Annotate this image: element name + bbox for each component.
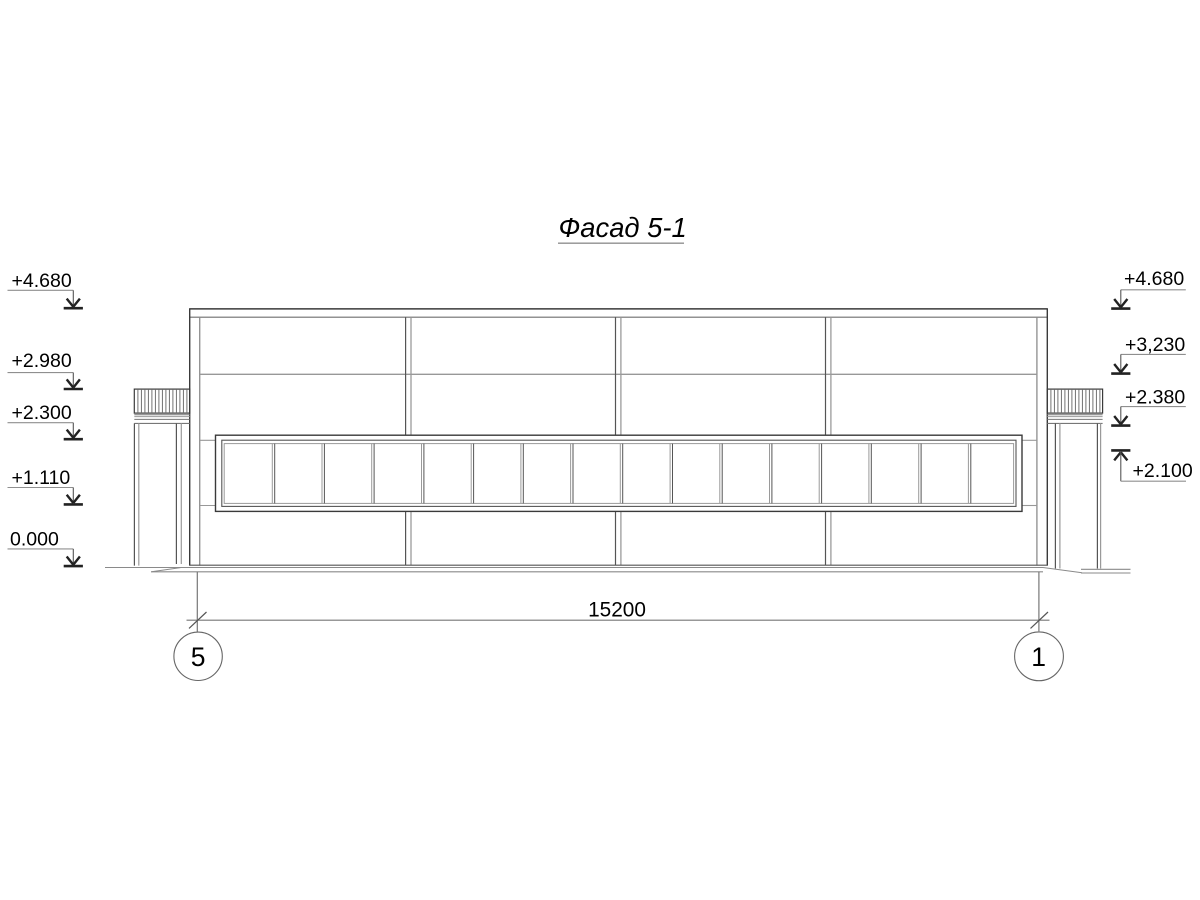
svg-text:+4.680: +4.680 [12,270,72,292]
svg-text:+1.110: +1.110 [12,467,71,489]
svg-text:+2.300: +2.300 [12,402,72,424]
svg-text:Фасад 5-1: Фасад 5-1 [559,212,687,243]
svg-text:1: 1 [1031,642,1046,672]
svg-text:+3,230: +3,230 [1125,334,1185,356]
svg-text:+2.380: +2.380 [1125,386,1185,408]
svg-text:5: 5 [191,642,206,672]
svg-text:15200: 15200 [588,599,646,622]
svg-text:+4.680: +4.680 [1124,268,1184,290]
svg-text:0.000: 0.000 [10,528,59,550]
svg-text:+2.100: +2.100 [1133,460,1193,482]
svg-text:+2.980: +2.980 [12,350,72,372]
